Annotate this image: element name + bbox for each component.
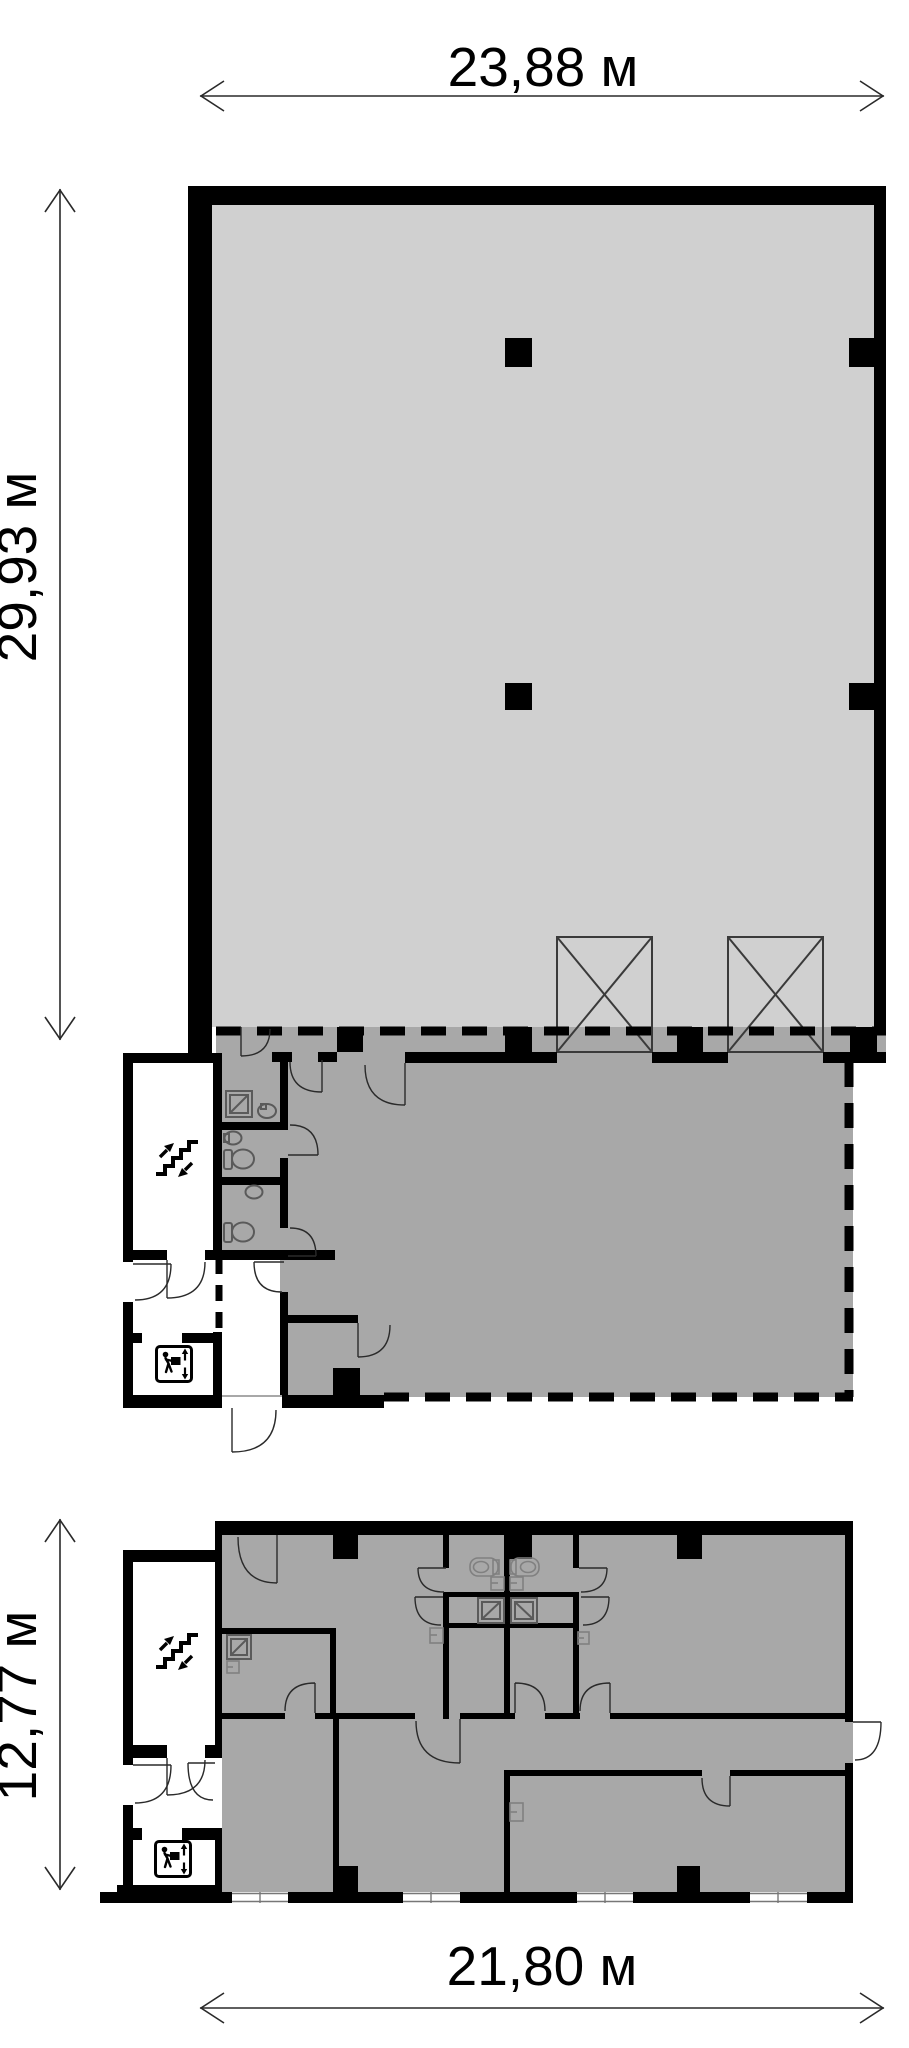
wall-segment: [123, 1395, 222, 1408]
wall-segment: [123, 1550, 133, 1765]
wall-segment: [123, 1745, 167, 1758]
vestibule: [133, 1758, 222, 1828]
wall-segment: [123, 1805, 133, 1895]
wall-segment: [123, 1053, 222, 1063]
wall-segment: [405, 1052, 557, 1063]
wall-segment: [287, 1315, 358, 1323]
wall-segment: [280, 1060, 288, 1125]
column: [677, 1866, 700, 1892]
wall-segment: [652, 1052, 728, 1063]
column: [505, 338, 532, 367]
wall-left: [215, 1535, 222, 1763]
mezzanine-floor: [216, 1027, 886, 1397]
wall-segment: [280, 1158, 288, 1228]
floor-plan-drawing: 23,88 м 29,93 м 12,77 м 21,80 м: [0, 0, 909, 2048]
wall-segment: [123, 1333, 142, 1343]
wall-segment: [123, 1250, 167, 1260]
door-opening: [845, 1722, 853, 1763]
shower-icon: [511, 1598, 537, 1623]
wall-segment: [222, 1122, 288, 1130]
wall-segment: [318, 1052, 337, 1062]
wall-segment: [123, 1828, 142, 1840]
wall-segment: [282, 1395, 384, 1408]
column: [333, 1535, 358, 1559]
freight-elevator-icon: [157, 1347, 192, 1382]
shower-icon: [478, 1598, 504, 1623]
wall-right: [874, 186, 886, 1062]
dimension-left-upper-label: 29,93 м: [0, 472, 48, 663]
column: [677, 1535, 702, 1559]
dimension-left-lower-label: 12,77 м: [0, 1611, 48, 1802]
wall-segment: [222, 1177, 288, 1185]
column: [677, 1027, 703, 1052]
wall-segment: [213, 1053, 222, 1250]
dimension-top-label: 23,88 м: [448, 36, 639, 98]
dimension-left-upper: 29,93 м: [0, 189, 75, 1040]
column: [849, 683, 874, 710]
wall-segment: [123, 1550, 222, 1562]
dimension-bottom: 21,80 м: [200, 1935, 884, 2023]
ground-floor-plan: [100, 1521, 881, 1903]
wall-stub: [333, 1368, 360, 1395]
open-hall-floor: [212, 205, 874, 1027]
wall-left: [188, 186, 212, 1053]
wall-right: [845, 1521, 853, 1722]
column: [505, 683, 532, 710]
wall-top: [188, 186, 886, 205]
shower-icon: [227, 1635, 251, 1659]
wall-segment: [123, 1053, 133, 1262]
dimension-bottom-label: 21,80 м: [447, 1935, 638, 1997]
wall-segment: [123, 1302, 133, 1408]
wall-segment: [205, 1745, 222, 1758]
upper-floor-plan: [188, 186, 886, 1062]
wall-segment: [823, 1052, 886, 1063]
stairwell-annex: [117, 1550, 222, 1903]
dimension-top: 23,88 м: [200, 36, 884, 111]
exit-corridor: [222, 1260, 280, 1395]
wall-segment: [280, 1292, 288, 1395]
column: [505, 1027, 532, 1052]
column: [849, 338, 874, 367]
dimension-left-lower: 12,77 м: [0, 1519, 75, 1890]
wall-segment: [117, 1885, 222, 1903]
wall-segment: [182, 1828, 222, 1840]
shower-icon: [226, 1091, 252, 1117]
column: [337, 1027, 363, 1052]
freight-elevator-icon: [156, 1842, 191, 1877]
wall-top: [215, 1521, 853, 1535]
column: [850, 1027, 877, 1052]
wall-right: [845, 1763, 853, 1903]
